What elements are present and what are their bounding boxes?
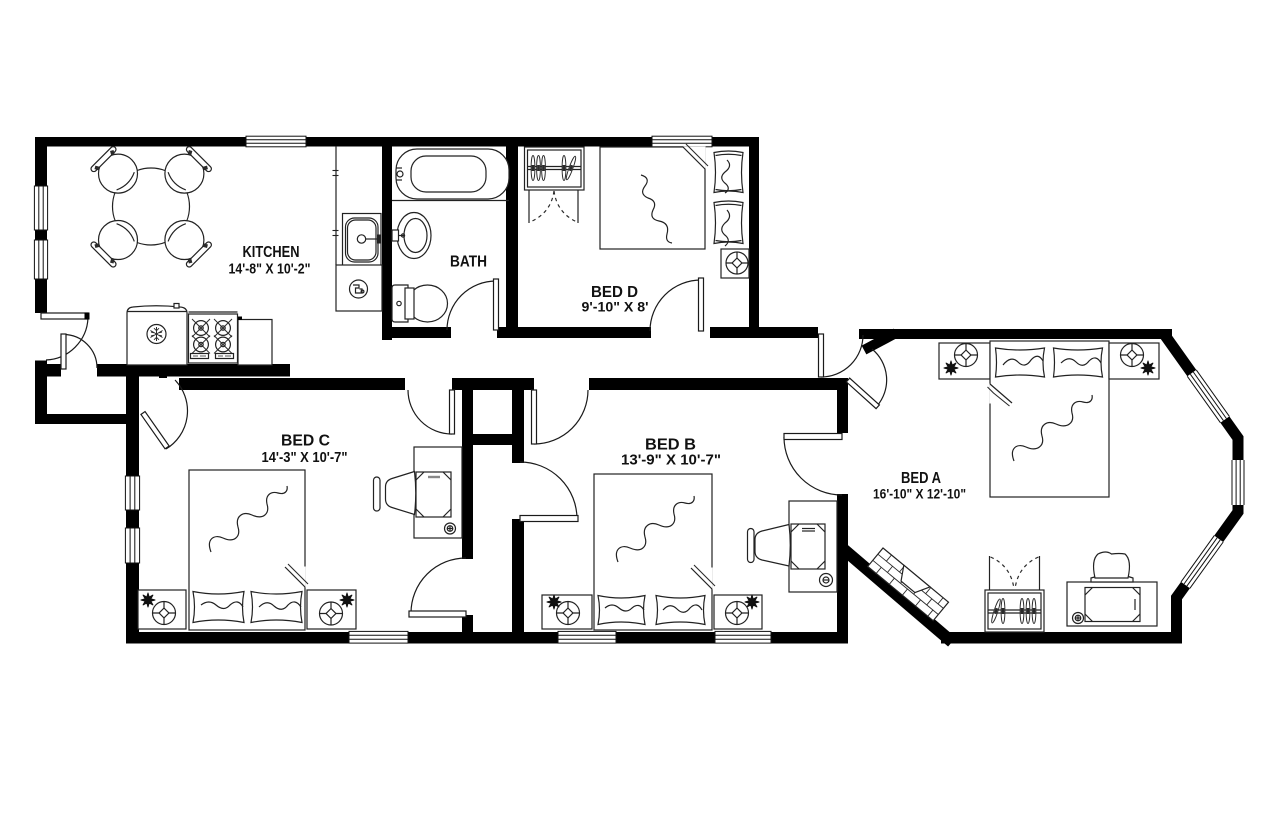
svg-text:BED A: BED A [901, 470, 941, 487]
svg-text:16'-10" X 12'-10": 16'-10" X 12'-10" [873, 486, 966, 502]
svg-text:BED B: BED B [645, 437, 696, 454]
svg-text:BATH: BATH [450, 254, 487, 271]
svg-text:14'-3" X 10'-7": 14'-3" X 10'-7" [262, 450, 348, 466]
svg-text:13'-9" X 10'-7": 13'-9" X 10'-7" [621, 453, 721, 469]
svg-text:14'-8" X 10'-2": 14'-8" X 10'-2" [229, 262, 311, 278]
svg-text:BED C: BED C [281, 433, 330, 450]
svg-text:9'-10" X 8': 9'-10" X 8' [582, 299, 649, 315]
svg-text:KITCHEN: KITCHEN [243, 244, 300, 261]
